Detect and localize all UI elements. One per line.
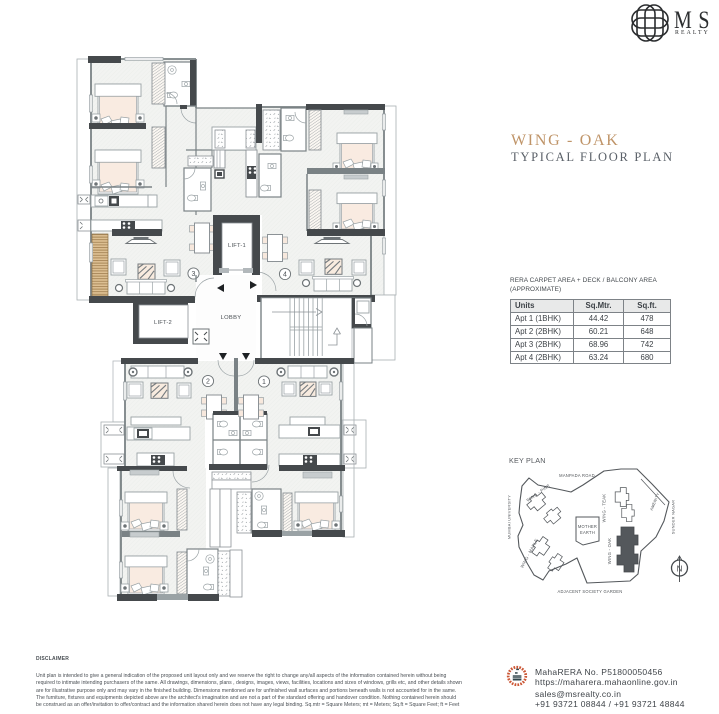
svg-text:MOTHER: MOTHER	[578, 524, 597, 529]
svg-text:WING - TEAK: WING - TEAK	[602, 494, 607, 523]
svg-text:LOBBY: LOBBY	[221, 315, 242, 321]
svg-text:WING - OAK: WING - OAK	[607, 538, 612, 564]
svg-text:N: N	[677, 565, 683, 574]
svg-text:LIFT-1: LIFT-1	[228, 243, 246, 249]
svg-text:AMENITY: AMENITY	[649, 492, 661, 512]
svg-text:EARTH: EARTH	[580, 530, 595, 535]
svg-text:2: 2	[206, 378, 210, 385]
svg-text:SUNDER NAGAR: SUNDER NAGAR	[671, 500, 676, 534]
svg-text:1: 1	[262, 379, 266, 386]
svg-text:ADJACENT SOCIETY GARDEN: ADJACENT SOCIETY GARDEN	[558, 589, 623, 594]
svg-text:4: 4	[283, 271, 287, 278]
svg-text:LIFT-2: LIFT-2	[154, 320, 172, 326]
svg-text:3: 3	[192, 271, 196, 278]
svg-text:MANPADA ROAD: MANPADA ROAD	[559, 473, 595, 478]
svg-text:MUMBAI UNIVERSITY: MUMBAI UNIVERSITY	[507, 495, 512, 539]
svg-text:WING - PINE: WING - PINE	[525, 483, 551, 503]
